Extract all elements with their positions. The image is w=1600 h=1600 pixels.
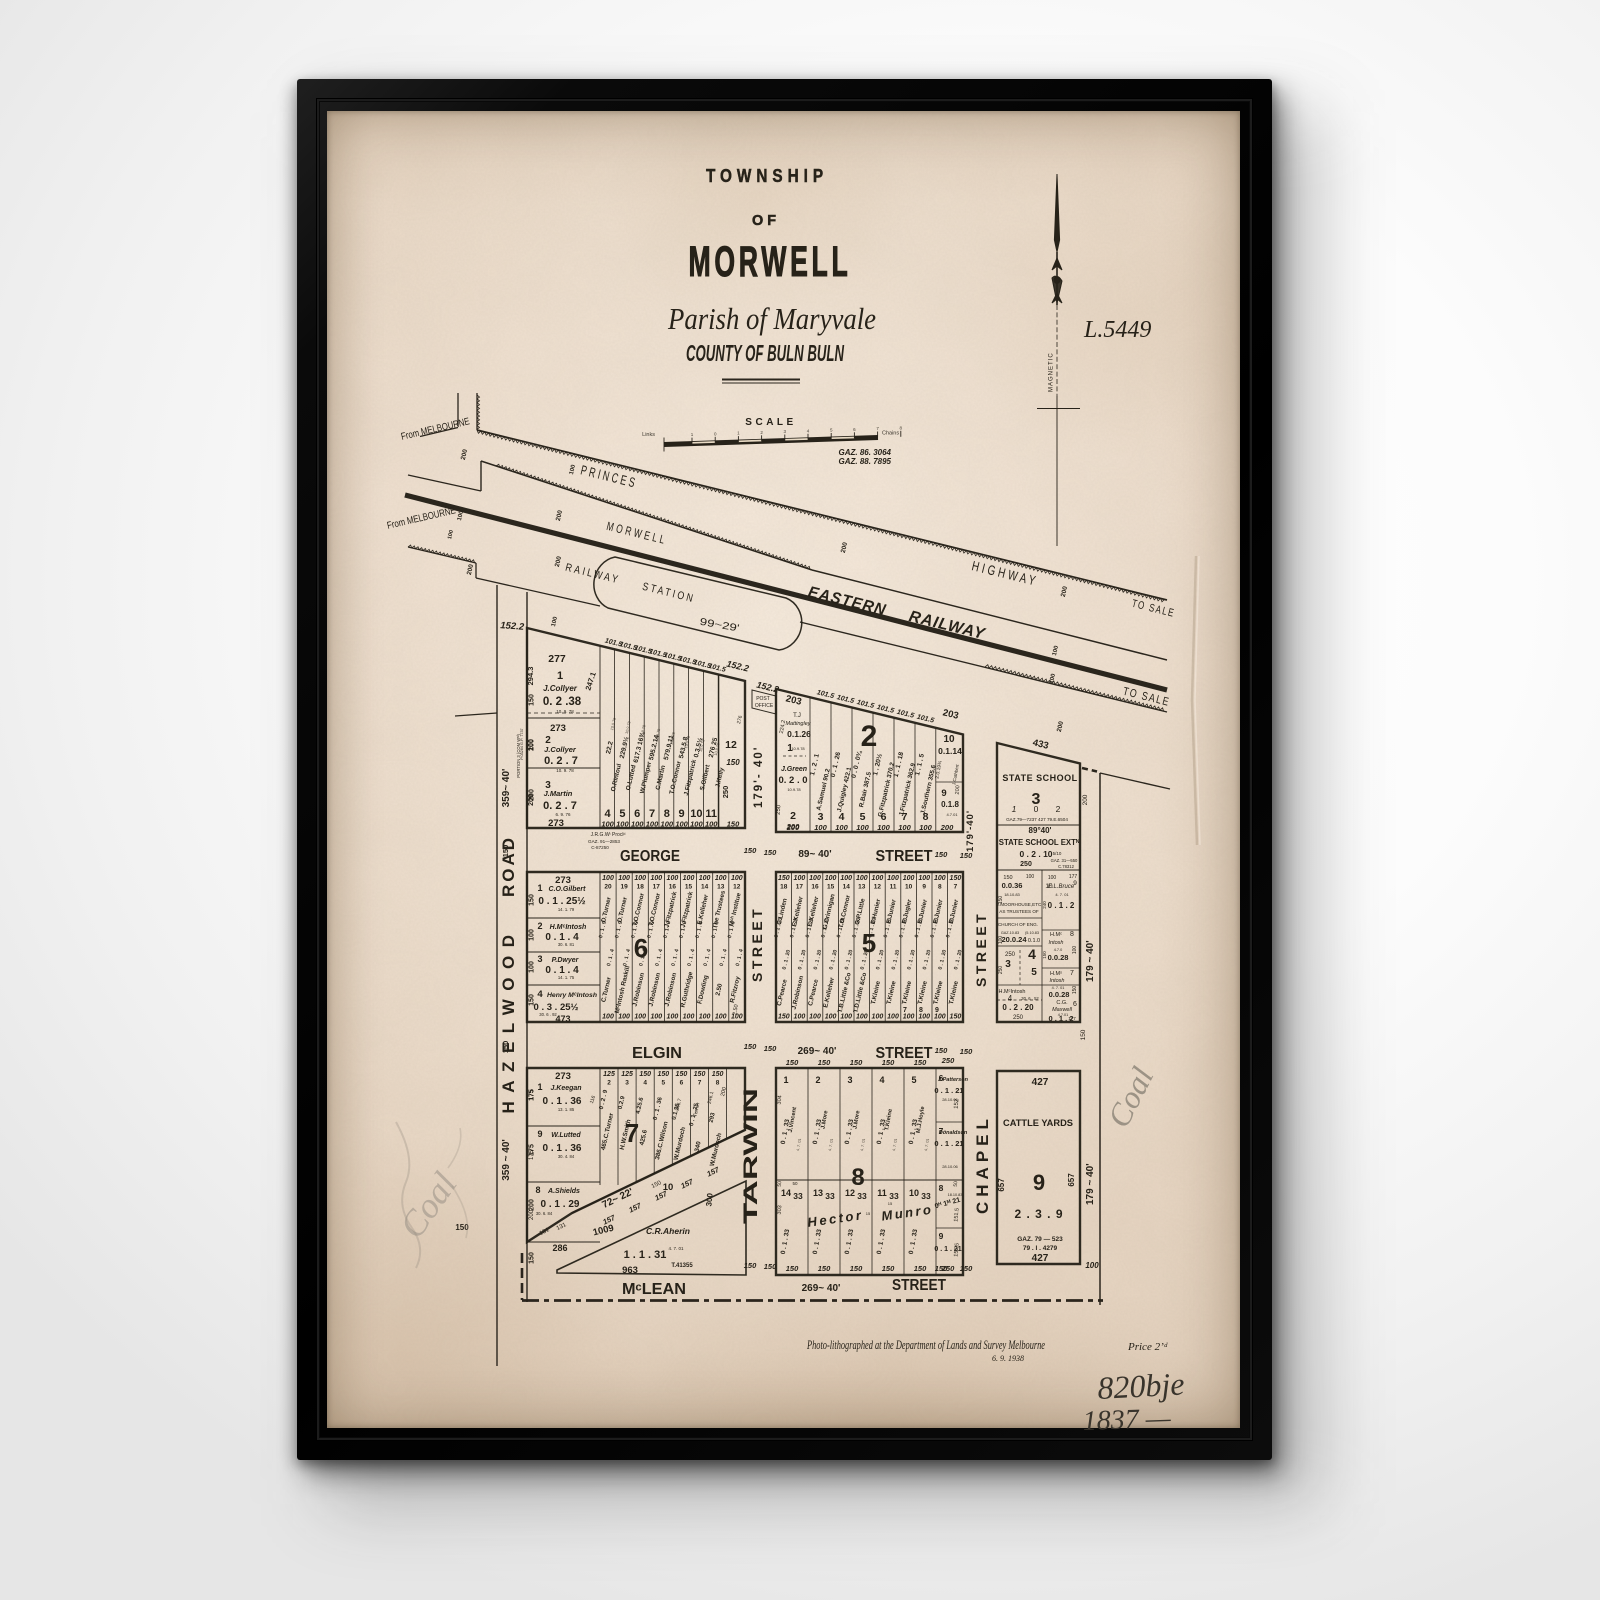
svg-text:175: 175 <box>529 1149 535 1160</box>
svg-text:2: 2 <box>537 921 542 931</box>
svg-text:8: 8 <box>1070 931 1074 938</box>
svg-text:8: 8 <box>938 884 942 891</box>
svg-text:8: 8 <box>919 1007 923 1014</box>
svg-text:100: 100 <box>794 875 806 882</box>
svg-text:250: 250 <box>776 804 783 815</box>
svg-text:16: 16 <box>669 884 677 891</box>
svg-text:89~ 40': 89~ 40' <box>798 849 831 860</box>
svg-text:0.0.28: 0.0.28 <box>1049 990 1070 999</box>
svg-text:2 . 3 . 9: 2 . 3 . 9 <box>1014 1207 1063 1221</box>
svg-text:16: 16 <box>811 884 819 891</box>
svg-text:3: 3 <box>818 811 824 823</box>
svg-text:50: 50 <box>953 1181 959 1187</box>
svg-text:100: 100 <box>835 823 848 832</box>
svg-text:0 . 1 . 25½: 0 . 1 . 25½ <box>538 896 585 907</box>
svg-text:100: 100 <box>715 1014 727 1021</box>
svg-text:150: 150 <box>850 1264 863 1273</box>
svg-text:C.O.Gilbert: C.O.Gilbert <box>549 886 587 893</box>
svg-text:W.Lutted: W.Lutted <box>551 1132 581 1139</box>
svg-text:100: 100 <box>683 1014 695 1021</box>
svg-text:17: 17 <box>796 884 804 891</box>
svg-text:7: 7 <box>649 808 655 820</box>
svg-text:150: 150 <box>778 1014 790 1021</box>
svg-text:100: 100 <box>877 823 890 832</box>
svg-text:150: 150 <box>529 1252 536 1264</box>
svg-text:J.Keegan: J.Keegan <box>550 1085 581 1092</box>
svg-text:5: 5 <box>661 1080 665 1087</box>
svg-text:359 ~ 40': 359 ~ 40' <box>501 1139 512 1181</box>
svg-text:200: 200 <box>529 1209 535 1220</box>
svg-text:18.10.83: 18.10.83 <box>1004 892 1020 897</box>
svg-text:125: 125 <box>621 1071 633 1078</box>
svg-text:ELGIN: ELGIN <box>632 1045 682 1062</box>
svg-text:10: 10 <box>663 1182 674 1193</box>
svg-text:100: 100 <box>675 820 688 829</box>
svg-text:(5.10.83: (5.10.83 <box>1025 931 1039 935</box>
svg-text:8: 8 <box>923 811 929 823</box>
svg-text:7: 7 <box>625 1118 639 1148</box>
svg-text:7: 7 <box>902 811 908 823</box>
svg-text:100: 100 <box>616 820 629 829</box>
svg-text:30. 6. 84: 30. 6. 84 <box>536 1211 553 1216</box>
svg-text:240: 240 <box>1042 901 1047 909</box>
svg-text:100: 100 <box>887 875 899 882</box>
svg-text:J.R.G.Wᵗ Proclᵈ: J.R.G.Wᵗ Proclᵈ <box>591 832 626 838</box>
svg-text:150: 150 <box>882 1264 895 1273</box>
svg-text:GEORGE: GEORGE <box>620 848 680 865</box>
svg-text:Price 2’ᵈ: Price 2’ᵈ <box>1127 1341 1168 1353</box>
svg-text:4.7.01: 4.7.01 <box>946 812 958 817</box>
svg-text:OFFICE: OFFICE <box>755 703 774 709</box>
svg-text:150: 150 <box>960 851 973 860</box>
svg-text:J.Martin: J.Martin <box>544 789 573 798</box>
svg-text:11: 11 <box>705 808 717 820</box>
svg-text:100: 100 <box>825 875 837 882</box>
svg-text:150: 150 <box>529 894 536 906</box>
svg-text:150: 150 <box>960 1264 973 1273</box>
svg-text:18: 18 <box>637 884 645 891</box>
svg-text:15: 15 <box>685 884 693 891</box>
svg-text:100: 100 <box>618 1014 630 1021</box>
svg-text:15: 15 <box>827 884 835 891</box>
svg-text:100: 100 <box>646 820 659 829</box>
svg-text:150: 150 <box>818 1264 831 1273</box>
svg-text:AS TRUSTEES OF: AS TRUSTEES OF <box>999 909 1039 914</box>
svg-text:13: 13 <box>717 884 725 891</box>
svg-text:14. 1. 75: 14. 1. 75 <box>558 975 575 980</box>
svg-text:C-87250: C-87250 <box>591 845 609 850</box>
svg-text:10.9.78: 10.9.78 <box>791 746 805 751</box>
svg-text:150: 150 <box>935 850 948 859</box>
svg-text:2: 2 <box>1056 804 1061 814</box>
svg-text:9: 9 <box>939 1231 944 1241</box>
svg-text:657: 657 <box>997 1178 1006 1192</box>
svg-text:150: 150 <box>676 1071 688 1078</box>
svg-text:10. 9. 78: 10. 9. 78 <box>556 768 574 773</box>
svg-text:2: 2 <box>861 720 878 753</box>
svg-text:150: 150 <box>501 1041 510 1054</box>
svg-text:820bje: 820bje <box>1096 1365 1185 1406</box>
svg-text:J.Collyer: J.Collyer <box>543 684 578 693</box>
svg-text:100: 100 <box>794 1014 806 1021</box>
svg-text:100: 100 <box>840 875 852 882</box>
svg-text:179 ~ 40': 179 ~ 40' <box>1085 940 1096 982</box>
svg-text:H.Mˢ: H.Mˢ <box>1050 971 1062 977</box>
svg-text:269~ 40': 269~ 40' <box>802 1283 841 1294</box>
svg-text:8: 8 <box>716 1080 720 1087</box>
svg-text:963: 963 <box>622 1265 638 1276</box>
svg-text:7: 7 <box>698 1080 702 1087</box>
svg-text:250: 250 <box>941 1264 955 1273</box>
svg-text:100: 100 <box>898 823 911 832</box>
svg-text:273: 273 <box>550 723 566 734</box>
svg-text:6. 9. 76: 6. 9. 76 <box>555 812 571 817</box>
svg-text:100: 100 <box>825 1014 837 1021</box>
svg-text:11: 11 <box>890 884 897 891</box>
svg-text:MORWELL: MORWELL <box>689 238 852 286</box>
svg-text:100: 100 <box>699 875 711 882</box>
svg-text:150: 150 <box>744 1042 757 1051</box>
svg-text:0 . 1 . 2: 0 . 1 . 2 <box>1048 901 1075 910</box>
svg-text:18.10.83: 18.10.83 <box>948 1193 963 1197</box>
svg-text:MAGNETIC: MAGNETIC <box>1049 352 1055 392</box>
svg-text:30. 6. 81: 30. 6. 81 <box>558 942 575 947</box>
svg-text:150: 150 <box>726 758 740 767</box>
svg-text:Parish of Maryvale: Parish of Maryvale <box>667 301 876 336</box>
svg-text:250: 250 <box>1005 952 1016 958</box>
svg-text:150: 150 <box>850 1058 863 1067</box>
svg-text:14: 14 <box>843 884 851 891</box>
svg-text:150: 150 <box>998 896 1004 905</box>
svg-text:SCALE: SCALE <box>745 417 796 428</box>
svg-text:150: 150 <box>1080 1029 1087 1040</box>
svg-text:150: 150 <box>950 875 962 882</box>
svg-text:177: 177 <box>1068 1016 1076 1021</box>
svg-text:GAZ. 91—2853: GAZ. 91—2853 <box>588 839 620 844</box>
svg-text:273: 273 <box>555 1071 571 1082</box>
svg-text:125: 125 <box>603 1071 615 1078</box>
svg-text:6: 6 <box>881 811 887 823</box>
svg-text:0.1.14: 0.1.14 <box>938 746 962 756</box>
svg-text:100: 100 <box>872 1014 884 1021</box>
svg-text:STREET: STREET <box>892 1277 946 1294</box>
svg-text:1: 1 <box>537 1082 542 1092</box>
svg-text:100: 100 <box>809 1014 821 1021</box>
svg-text:100: 100 <box>601 820 614 829</box>
svg-text:200: 200 <box>786 823 800 832</box>
svg-text:15: 15 <box>888 1201 893 1206</box>
svg-text:6: 6 <box>680 1080 684 1087</box>
svg-text:100: 100 <box>650 1014 662 1021</box>
svg-text:CHURCH OF ENG.: CHURCH OF ENG. <box>998 922 1038 927</box>
svg-text:150: 150 <box>764 848 777 857</box>
svg-text:200: 200 <box>529 1199 536 1211</box>
svg-text:179'- 40': 179'- 40' <box>753 746 765 808</box>
svg-text:427: 427 <box>1032 1077 1049 1088</box>
svg-text:9: 9 <box>1033 1170 1045 1195</box>
svg-text:Chains: Chains <box>882 431 899 437</box>
svg-text:150: 150 <box>935 1046 948 1055</box>
svg-text:J.Patterson: J.Patterson <box>938 1077 969 1083</box>
svg-text:3: 3 <box>625 1080 629 1087</box>
svg-text:0 . 1 . 21: 0 . 1 . 21 <box>934 1086 963 1095</box>
svg-text:6: 6 <box>634 808 640 820</box>
svg-text:100: 100 <box>529 929 536 941</box>
svg-text:1 . 1 . 31: 1 . 1 . 31 <box>624 1249 667 1261</box>
svg-text:100: 100 <box>667 875 679 882</box>
svg-text:13. 1. 85: 13. 1. 85 <box>558 1107 575 1112</box>
svg-text:0.1.0: 0.1.0 <box>1028 938 1040 944</box>
svg-text:GAZ.79—7237 427 79.E.6504: GAZ.79—7237 427 79.E.6504 <box>1006 817 1068 822</box>
svg-text:9: 9 <box>537 1129 542 1139</box>
svg-text:10.9.78: 10.9.78 <box>787 787 801 792</box>
svg-text:28.10.06: 28.10.06 <box>942 1164 958 1169</box>
svg-text:E.L.Bruce: E.L.Bruce <box>1048 884 1075 890</box>
svg-text:4: 4 <box>839 811 845 823</box>
svg-text:2: 2 <box>607 1080 611 1087</box>
svg-text:5: 5 <box>911 1075 916 1085</box>
svg-text:100: 100 <box>809 875 821 882</box>
svg-text:4. 7. 01: 4. 7. 01 <box>1055 892 1069 897</box>
svg-text:150: 150 <box>764 1044 777 1053</box>
svg-text:0 . 2 . 10: 0 . 2 . 10 <box>1019 849 1052 859</box>
svg-text:269~ 40': 269~ 40' <box>798 1046 837 1057</box>
svg-text:100: 100 <box>683 875 695 882</box>
svg-text:0.1.8: 0.1.8 <box>941 800 959 809</box>
svg-text:250: 250 <box>1013 1015 1024 1021</box>
svg-text:151.5: 151.5 <box>953 1243 960 1257</box>
svg-text:CHAPEL: CHAPEL <box>973 1114 992 1214</box>
svg-text:GAZ. 79 — 523: GAZ. 79 — 523 <box>1017 1236 1063 1243</box>
svg-text:150: 150 <box>694 1071 706 1078</box>
svg-text:3: 3 <box>1005 959 1011 970</box>
svg-text:100: 100 <box>856 1014 868 1021</box>
svg-text:A.Shields: A.Shields <box>547 1188 580 1195</box>
svg-text:1: 1 <box>557 670 563 682</box>
svg-text:79 . I . 4279: 79 . I . 4279 <box>1023 1245 1058 1252</box>
svg-text:3: 3 <box>537 954 542 964</box>
svg-text:0 . 1 . 29: 0 . 1 . 29 <box>541 1199 580 1210</box>
svg-text:100: 100 <box>699 1014 711 1021</box>
svg-text:300: 300 <box>704 1192 714 1207</box>
svg-text:150: 150 <box>712 1071 724 1078</box>
svg-text:9: 9 <box>935 1007 939 1014</box>
svg-text:100: 100 <box>529 961 536 973</box>
svg-text:100: 100 <box>731 875 743 882</box>
svg-text:5/10: 5/10 <box>1053 851 1062 856</box>
svg-text:C.78312: C.78312 <box>1058 864 1075 869</box>
svg-text:10: 10 <box>690 808 702 820</box>
svg-text:50: 50 <box>777 1181 783 1187</box>
svg-text:10. 9. 78: 10. 9. 78 <box>556 709 574 714</box>
svg-text:100: 100 <box>919 823 932 832</box>
svg-text:20.0.24: 20.0.24 <box>1001 935 1027 944</box>
svg-text:12: 12 <box>725 739 737 751</box>
svg-text:250: 250 <box>941 1056 955 1065</box>
svg-text:Intosh: Intosh <box>1049 940 1064 946</box>
svg-text:8: 8 <box>939 1183 944 1193</box>
svg-text:473: 473 <box>555 1014 570 1024</box>
svg-text:150: 150 <box>1072 986 1078 995</box>
svg-text:33: 33 <box>921 1191 931 1201</box>
svg-text:150: 150 <box>501 845 510 858</box>
svg-text:100: 100 <box>690 820 703 829</box>
svg-text:9: 9 <box>679 808 685 820</box>
svg-text:J.Collyer: J.Collyer <box>544 745 577 754</box>
svg-text:150: 150 <box>950 1014 962 1021</box>
svg-text:8: 8 <box>535 1185 540 1195</box>
svg-text:Henry MᶜIntosh: Henry MᶜIntosh <box>547 992 597 999</box>
svg-text:5: 5 <box>1031 967 1037 978</box>
svg-text:11: 11 <box>877 1188 887 1198</box>
svg-text:304: 304 <box>777 1095 784 1105</box>
svg-text:0.1.26: 0.1.26 <box>787 729 811 739</box>
svg-text:STREET: STREET <box>876 848 933 865</box>
svg-text:17: 17 <box>653 884 661 891</box>
svg-text:C.R.Aherin: C.R.Aherin <box>646 1226 690 1236</box>
svg-text:2: 2 <box>790 810 796 822</box>
svg-text:200: 200 <box>955 785 962 795</box>
svg-text:5: 5 <box>862 928 876 958</box>
svg-text:4: 4 <box>643 1080 647 1087</box>
svg-text:STREET: STREET <box>973 911 989 987</box>
svg-text:150: 150 <box>727 820 740 829</box>
svg-text:151.5: 151.5 <box>953 1208 960 1222</box>
svg-text:Photo-lithographed at the Depa: Photo-lithographed at the Department of … <box>806 1338 1045 1352</box>
svg-text:100: 100 <box>715 875 727 882</box>
svg-text:1: 1 <box>783 1075 788 1085</box>
svg-text:GAZ. 88. 7895: GAZ. 88. 7895 <box>839 457 892 466</box>
svg-text:GAZ. 31—550: GAZ. 31—550 <box>1051 858 1078 863</box>
svg-text:100: 100 <box>634 875 646 882</box>
svg-text:200: 200 <box>1082 794 1089 805</box>
svg-text:9: 9 <box>941 788 946 799</box>
svg-text:4. 7. 01: 4. 7. 01 <box>668 1246 684 1251</box>
svg-text:250: 250 <box>998 966 1004 975</box>
svg-text:Intosh: Intosh <box>1050 978 1065 984</box>
svg-text:12: 12 <box>845 1188 855 1198</box>
svg-text:100: 100 <box>814 823 827 832</box>
svg-text:1: 1 <box>1012 804 1017 814</box>
svg-text:L.5449: L.5449 <box>1083 317 1151 343</box>
svg-text:100: 100 <box>618 875 630 882</box>
svg-text:150: 150 <box>639 1071 651 1078</box>
svg-text:8: 8 <box>851 1164 864 1191</box>
svg-text:Donaldson: Donaldson <box>939 1130 968 1136</box>
svg-text:30. 4. 84: 30. 4. 84 <box>558 1154 575 1159</box>
svg-text:100: 100 <box>705 820 718 829</box>
svg-text:150: 150 <box>778 875 790 882</box>
svg-text:150: 150 <box>786 1264 799 1273</box>
svg-text:0 . 1 . 21: 0 . 1 . 21 <box>934 1139 963 1148</box>
svg-text:6. 9. 1938: 6. 9. 1938 <box>992 1354 1024 1363</box>
svg-text:4: 4 <box>605 808 612 820</box>
svg-text:179'-40': 179'-40' <box>965 810 976 852</box>
svg-text:200: 200 <box>940 823 954 832</box>
svg-text:100: 100 <box>661 820 674 829</box>
svg-text:100: 100 <box>602 875 614 882</box>
svg-text:0. 2 . 7: 0. 2 . 7 <box>544 755 578 767</box>
svg-text:89°40': 89°40' <box>1029 826 1052 835</box>
svg-text:MᶜLEAN: MᶜLEAN <box>622 1281 686 1298</box>
svg-text:250: 250 <box>1020 861 1032 868</box>
svg-text:150: 150 <box>914 1264 927 1273</box>
svg-text:175: 175 <box>529 1089 535 1100</box>
svg-text:14: 14 <box>701 884 709 891</box>
svg-text:J.Green: J.Green <box>781 766 807 773</box>
svg-text:0. 2 .38: 0. 2 .38 <box>543 696 582 708</box>
svg-text:294.3: 294.3 <box>526 667 535 686</box>
svg-text:CATTLE YARDS: CATTLE YARDS <box>1003 1118 1073 1129</box>
svg-text:50: 50 <box>792 1181 798 1186</box>
svg-text:STATE SCHOOL: STATE SCHOOL <box>1002 773 1077 783</box>
svg-text:152.2: 152.2 <box>500 620 525 633</box>
svg-text:13: 13 <box>813 1188 823 1198</box>
svg-text:0.0.28: 0.0.28 <box>1048 953 1069 962</box>
svg-text:100: 100 <box>934 875 946 882</box>
svg-text:0.0.36: 0.0.36 <box>1002 881 1023 890</box>
svg-text:5: 5 <box>619 808 625 820</box>
svg-text:0. 2 . 7: 0. 2 . 7 <box>543 800 577 812</box>
svg-text:33: 33 <box>889 1191 899 1201</box>
svg-text:179 ~ 40': 179 ~ 40' <box>1085 1163 1096 1205</box>
svg-text:100: 100 <box>634 1014 646 1021</box>
svg-text:0 . 1 . 36: 0 . 1 . 36 <box>543 1096 582 1107</box>
svg-text:100: 100 <box>1072 946 1078 955</box>
svg-text:100: 100 <box>934 1014 946 1021</box>
svg-text:6: 6 <box>1073 1001 1077 1008</box>
svg-text:3: 3 <box>847 1075 852 1085</box>
svg-text:COUNTY OF BULN BULN: COUNTY OF BULN BULN <box>686 340 844 366</box>
svg-text:100: 100 <box>602 1014 614 1021</box>
svg-text:200: 200 <box>528 794 535 806</box>
svg-text:T.J: T.J <box>793 713 801 719</box>
svg-text:5: 5 <box>860 811 866 823</box>
svg-text:100: 100 <box>856 823 869 832</box>
svg-text:250: 250 <box>721 786 730 799</box>
svg-text:286: 286 <box>552 1243 567 1253</box>
svg-text:4.7.0: 4.7.0 <box>1054 948 1062 952</box>
svg-text:100: 100 <box>856 875 868 882</box>
svg-text:15: 15 <box>866 1211 871 1216</box>
svg-text:100: 100 <box>1026 874 1035 880</box>
svg-text:H.Mᶜ: H.Mᶜ <box>1050 932 1062 938</box>
svg-text:T.41355: T.41355 <box>671 1263 693 1269</box>
svg-text:150: 150 <box>529 694 536 706</box>
svg-text:10: 10 <box>905 884 913 891</box>
svg-text:150: 150 <box>786 1058 799 1067</box>
svg-text:277: 277 <box>548 653 566 665</box>
svg-text:Mattingley: Mattingley <box>785 721 811 727</box>
svg-text:150: 150 <box>744 846 757 855</box>
svg-text:100: 100 <box>840 1014 852 1021</box>
svg-text:GAZ. 86. 3064: GAZ. 86. 3064 <box>839 448 892 457</box>
svg-text:TOWNSHIP: TOWNSHIP <box>706 165 828 186</box>
svg-text:0: 0 <box>1034 804 1039 814</box>
svg-text:12: 12 <box>733 884 741 891</box>
svg-text:7: 7 <box>954 884 958 891</box>
svg-text:427: 427 <box>1032 1253 1049 1264</box>
svg-text:10: 10 <box>909 1188 919 1198</box>
svg-text:18: 18 <box>780 884 788 891</box>
svg-text:19: 19 <box>620 884 628 891</box>
svg-text:150: 150 <box>882 1058 895 1067</box>
svg-text:100: 100 <box>650 875 662 882</box>
svg-text:HAZELWOOD: HAZELWOOD <box>499 927 518 1114</box>
svg-text:H.MᶜIntosh: H.MᶜIntosh <box>550 924 587 931</box>
svg-text:100: 100 <box>998 936 1004 945</box>
svg-text:100: 100 <box>903 875 915 882</box>
